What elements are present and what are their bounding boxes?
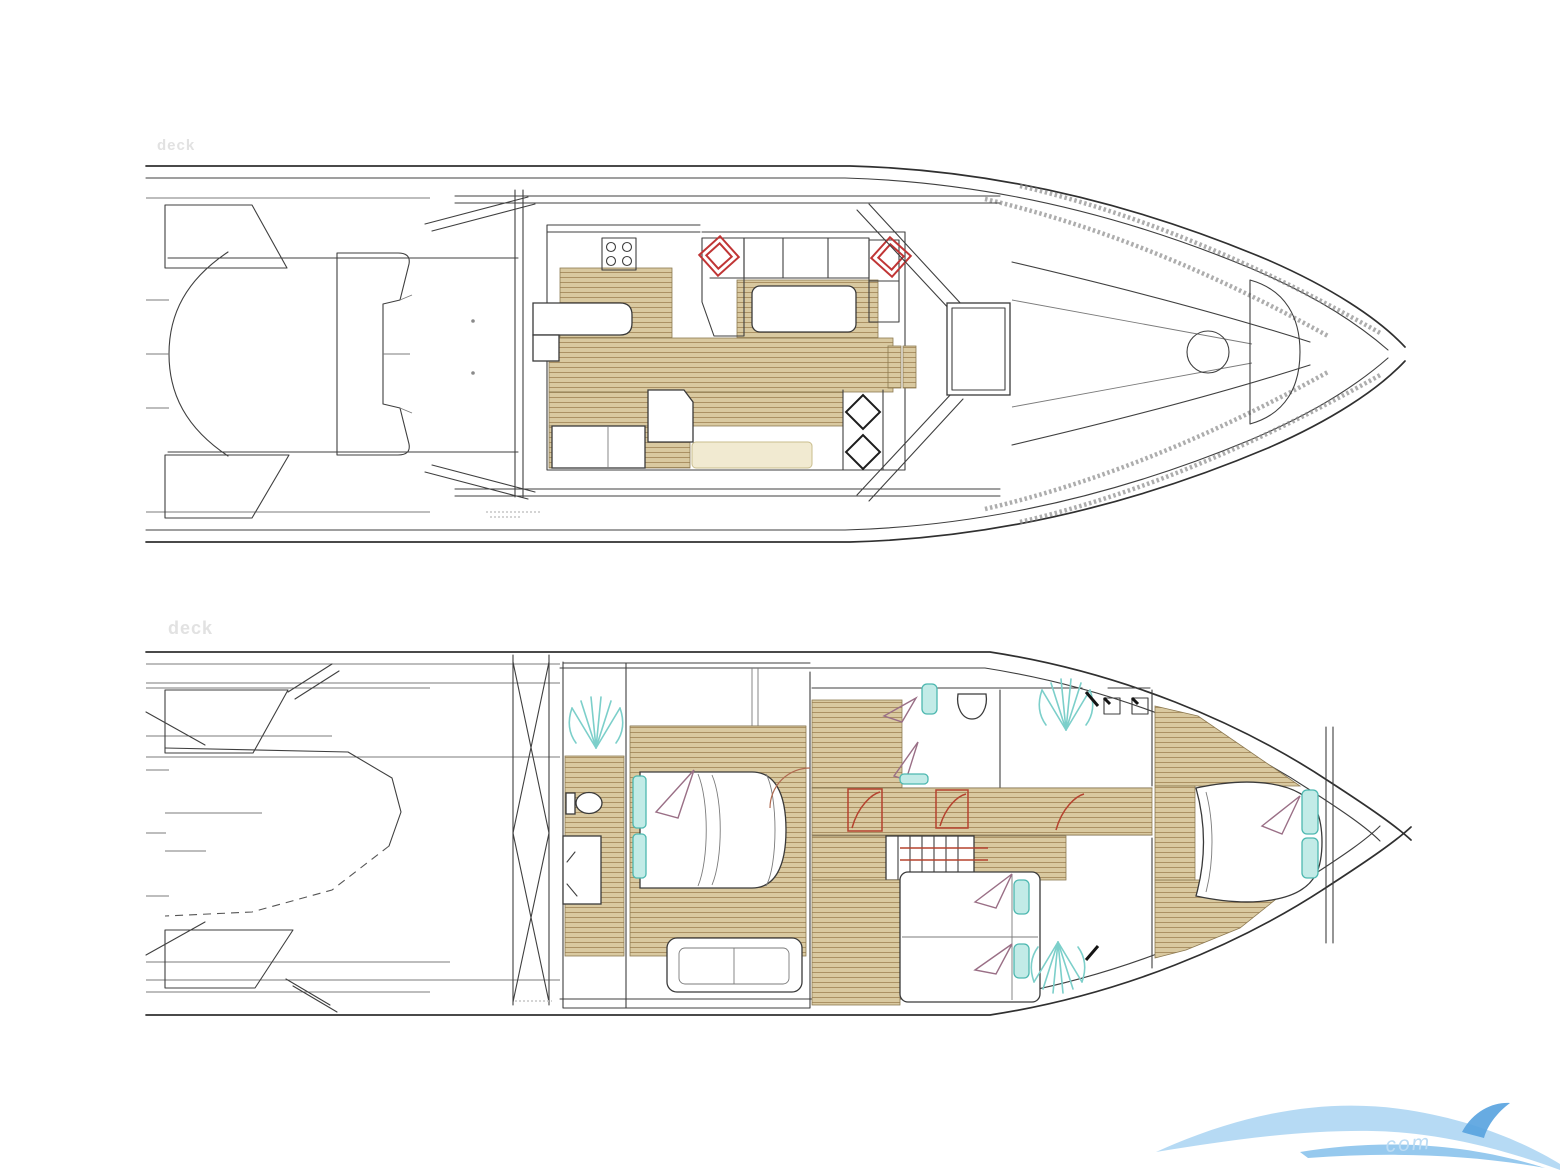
guest-beds	[900, 872, 1040, 1002]
helm-seat	[846, 435, 880, 469]
salon-cabinet	[648, 390, 693, 442]
sink	[922, 684, 937, 714]
guest-cabin-floor	[812, 880, 900, 1005]
floor-strip	[812, 836, 886, 880]
bed-pillow	[1014, 880, 1029, 914]
main-deck-stern	[146, 197, 540, 518]
foredeck-hatch	[1187, 331, 1229, 373]
salon	[455, 190, 1000, 497]
vip-floor	[1155, 706, 1300, 786]
vip-floor	[1155, 786, 1195, 880]
helm-console	[947, 303, 1010, 395]
helm-seat	[846, 395, 880, 429]
bed-pillow	[633, 776, 646, 828]
accent-armchair	[699, 236, 739, 276]
corridor-floor	[812, 788, 1152, 835]
bulkhead-cross-brace	[513, 655, 549, 1005]
deck-plan-drawing: deck	[0, 0, 1560, 1170]
vanity-fixture	[900, 774, 928, 784]
mid-section	[812, 679, 1152, 1005]
lower-deck-plan: deck	[146, 618, 1411, 1015]
salon-table	[752, 286, 856, 332]
salon-floor	[549, 338, 893, 392]
toilet	[566, 793, 602, 815]
shower-tray	[563, 836, 601, 904]
aft-stairs-starboard	[165, 930, 293, 988]
lower-deck-aft	[165, 655, 552, 1012]
cockpit-seat	[337, 253, 412, 455]
helm-step	[903, 346, 916, 388]
watermark-text: com	[1385, 1131, 1432, 1157]
main-deck-plan: deck	[146, 137, 1405, 542]
galley-stove	[602, 238, 636, 270]
bed-pillow	[633, 834, 646, 878]
yacht-deck-plan-page: deck	[0, 0, 1560, 1170]
engine-room-hatch	[165, 748, 401, 916]
sideboard	[552, 426, 645, 468]
toilet	[958, 694, 987, 719]
deck-hatch	[1104, 698, 1148, 714]
lower-deck-label: deck	[168, 618, 213, 638]
bed-pillow	[1302, 790, 1318, 834]
aft-stairs-port	[165, 690, 288, 753]
collision-bulkhead	[1326, 727, 1333, 943]
vip-bed	[1196, 782, 1322, 902]
tiny-annotation-mark	[486, 512, 540, 517]
helm-step	[888, 346, 901, 388]
master-cabin	[563, 662, 810, 1008]
master-sofa	[667, 938, 802, 992]
bed-pillow	[1302, 838, 1318, 878]
master-bed	[633, 770, 786, 888]
stern-stairs-starboard	[165, 455, 289, 518]
salon-floor-aft	[549, 392, 843, 426]
main-deck-label: deck	[157, 137, 195, 154]
bed-pillow	[1014, 944, 1029, 978]
bench-cushion	[692, 442, 812, 468]
watermark-logo: com	[1156, 1103, 1560, 1170]
